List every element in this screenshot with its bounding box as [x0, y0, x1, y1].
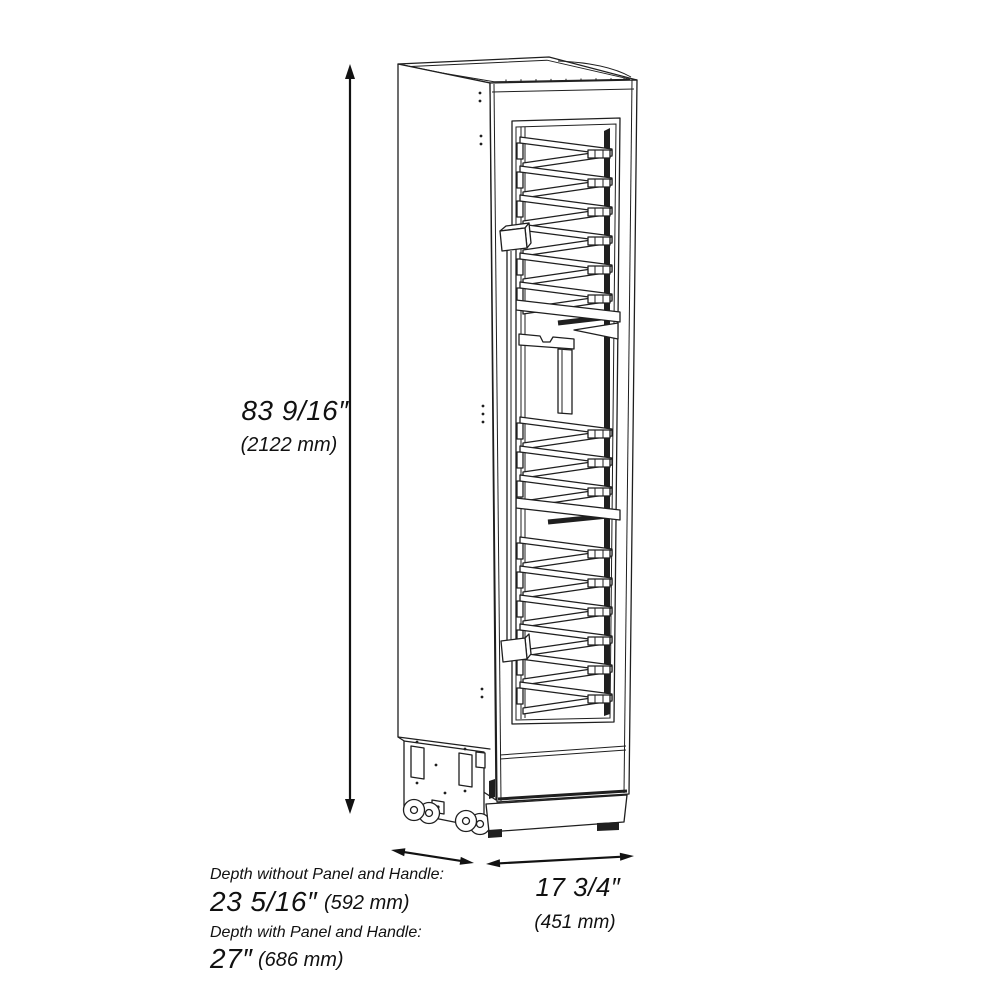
depth-with-panel-mm: (686 mm) — [258, 949, 344, 971]
depth-without-panel-mm: (592 mm) — [324, 892, 410, 914]
mount-bracket — [459, 753, 472, 787]
width-mm-label: (451 mm) — [534, 912, 615, 933]
side-panel — [398, 64, 496, 800]
height-inches-label: 83 9/16″ — [241, 395, 349, 426]
depth-dimension-arrow — [391, 848, 474, 865]
depth-without-panel-label: Depth without Panel and Handle: — [210, 866, 444, 883]
height-dimension-arrow — [345, 64, 355, 814]
depth-without-panel-inches: 23 5/16″ — [209, 886, 318, 917]
lower-hinge — [489, 779, 495, 799]
wine-cooler-drawing: 83 9/16″ (2122 mm) Depth without Panel a… — [0, 0, 1000, 1000]
depth-with-panel-inches: 27″ — [209, 943, 253, 974]
dimension-diagram: 83 9/16″ (2122 mm) Depth without Panel a… — [0, 0, 1000, 1000]
foot — [488, 829, 502, 838]
width-inches-label: 17 3/4″ — [536, 872, 621, 902]
mount-bracket — [411, 746, 424, 779]
base-section — [404, 741, 491, 835]
width-dimension-arrow — [486, 853, 634, 867]
glass-door — [489, 80, 637, 802]
height-mm-label: (2122 mm) — [241, 434, 338, 456]
foot — [597, 822, 619, 831]
depth-with-panel-label: Depth with Panel and Handle: — [210, 924, 422, 941]
mount-bracket — [476, 752, 485, 768]
